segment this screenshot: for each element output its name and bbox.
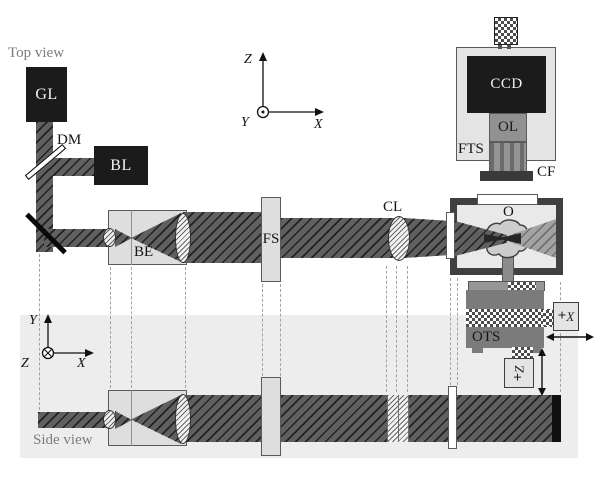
condenser-lens-band-divider xyxy=(398,395,399,442)
z-motor-box: +Z xyxy=(504,358,534,388)
top-axis-z-label: Z xyxy=(244,52,252,68)
dashed-line-cl-mid xyxy=(396,266,397,392)
objective-lens-box: OL xyxy=(489,113,527,142)
x-motor-axis-label: X xyxy=(566,310,574,323)
ots-foot-left xyxy=(472,348,483,353)
condenser-lens-band-side xyxy=(387,395,409,442)
x-motor-box: +X xyxy=(553,302,579,331)
ol-label: OL xyxy=(498,120,518,135)
ccd-camera-box: CCD xyxy=(467,56,546,113)
ots-screw-band xyxy=(466,309,552,327)
ots-body-lower: OTS xyxy=(466,327,544,348)
top-axis-x-label: X xyxy=(314,117,323,133)
gl-label: GL xyxy=(35,87,57,103)
side-axis-x-label: X xyxy=(77,356,86,372)
field-stop-slab-side xyxy=(261,377,281,456)
cl-label: CL xyxy=(383,200,402,215)
focus-knob-leg-left xyxy=(498,45,502,49)
gl-laser-box: GL xyxy=(26,67,67,122)
be-large-lens-top xyxy=(175,213,191,263)
side-axis-y-label: Y xyxy=(29,313,37,329)
side-beam-narrow xyxy=(38,412,110,428)
x-translation-arrow xyxy=(545,329,595,345)
be-pinhole-line-top xyxy=(131,210,132,265)
condenser-lens xyxy=(388,216,410,261)
optical-setup-diagram: Top view GL DM BL BE FS CL xyxy=(0,0,600,478)
dashed-line-be-lens xyxy=(185,267,186,388)
ccd-label: CCD xyxy=(490,77,522,92)
ots-label: OTS xyxy=(472,330,500,345)
be-pinhole-line-side xyxy=(131,390,132,446)
focus-knob xyxy=(494,17,518,45)
dashed-line-cl-right xyxy=(407,266,408,392)
z-motor-symbol: + xyxy=(511,372,526,381)
side-beam-wide xyxy=(183,395,557,442)
dashed-line-cl-left xyxy=(386,266,387,392)
cf-coverslip-bar xyxy=(480,171,533,181)
dm-label: DM xyxy=(57,133,81,148)
dashed-line-fs-left xyxy=(262,284,263,376)
dashed-line-fs-right xyxy=(280,284,281,376)
cf-label: CF xyxy=(537,165,555,180)
chamber-window-slab-side xyxy=(448,386,457,449)
x-motor-symbol: + xyxy=(558,309,567,324)
be-large-lens-side xyxy=(175,394,191,444)
dashed-line-window-left xyxy=(450,278,451,385)
stage-top-screw xyxy=(508,282,536,290)
beam-dm-to-bl xyxy=(50,158,94,176)
objective-barrel xyxy=(489,142,527,172)
ots-body-upper xyxy=(466,290,544,310)
z-motor-symbol-group: +Z xyxy=(511,365,526,381)
focus-knob-leg-right xyxy=(507,45,511,49)
be-label: BE xyxy=(134,245,153,260)
beam-fs-to-cl xyxy=(281,218,404,258)
z-translation-arrow xyxy=(534,347,550,397)
be-small-lens-side xyxy=(103,410,116,429)
field-stop-slab-top: FS xyxy=(261,197,281,282)
chamber-left-window xyxy=(446,212,455,259)
side-view-label: Side view xyxy=(33,432,93,449)
side-axis-z-label: Z xyxy=(21,356,29,372)
be-small-lens-top xyxy=(103,228,116,247)
beam-be-to-fs xyxy=(183,212,263,263)
top-view-label: Top view xyxy=(8,45,64,62)
bl-label: BL xyxy=(110,158,131,174)
fts-label: FTS xyxy=(458,142,484,157)
fs-label: FS xyxy=(263,232,280,247)
dashed-line-be-pinhole xyxy=(131,267,132,388)
top-axis-y-label: Y xyxy=(241,115,249,131)
dashed-line-window-right xyxy=(457,278,458,385)
side-beam-end-bar xyxy=(552,395,561,442)
o-label: O xyxy=(503,205,514,220)
z-motor-axis-label: Z xyxy=(512,365,525,372)
dashed-line-be-left xyxy=(110,267,111,388)
bl-laser-box: BL xyxy=(94,146,148,185)
